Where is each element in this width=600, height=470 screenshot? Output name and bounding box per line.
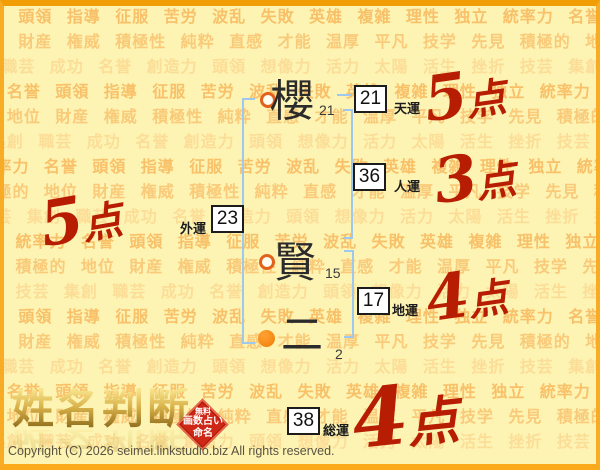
chiun-bracket-top-tick xyxy=(344,250,354,252)
name-char-2: 賢 xyxy=(274,242,316,284)
tenun-value: 21 xyxy=(360,88,381,110)
badge-line-2: 画数占い xyxy=(174,416,232,428)
jinun-bracket-top-tick xyxy=(343,109,353,111)
soun-score: 4点 xyxy=(348,371,460,462)
seimei-handan-result-page: 独立 統率力 名誉 頭領 指導 征服 苦労 波乱 失敗 英雄 複雑 理性 独立 … xyxy=(0,0,600,470)
stroke-count-3: 2 xyxy=(335,346,343,362)
free-service-badge-text[interactable]: 無料 画数占い 命名 xyxy=(174,407,232,439)
copyright-text: Copyright (C) 2026 seimei.linkstudio.biz… xyxy=(8,444,335,458)
name-char-1: 櫻 xyxy=(270,80,314,124)
watermark-row: 先見 積極的 地位 財産 権威 積極性 純粋 直感 才能 温厚 平凡 技学 先見… xyxy=(4,33,596,53)
stroke-count-1: 21 xyxy=(319,102,335,118)
tenun-score: 5点 xyxy=(420,59,507,131)
name-char-3: 二 xyxy=(281,314,323,356)
badge-line-1: 無料 xyxy=(174,407,232,416)
jinun-score: 3点 xyxy=(430,141,517,213)
tenun-connector-line xyxy=(337,94,352,96)
chiun-label: 地運 xyxy=(392,300,418,319)
chiun-value: 17 xyxy=(363,290,384,312)
soun-label: 総運 xyxy=(323,420,349,439)
badge-line-3: 命名 xyxy=(174,428,232,440)
chiun-score: 4点 xyxy=(422,259,509,331)
soun-value: 38 xyxy=(293,410,314,432)
gaiun-bracket-top-tick xyxy=(242,98,255,100)
jinun-value-box: 36 xyxy=(353,163,386,191)
stroke-count-2: 15 xyxy=(325,265,341,281)
watermark-row: 挫折 技芸 集創 職芸 成功 名誉 創造力 頭領 想像力 活力 太陽 活生 挫折… xyxy=(4,58,596,78)
gaiun-label: 外運 xyxy=(180,218,206,237)
given-char-marker xyxy=(259,254,275,270)
watermark-row: 挫折 技芸 集創 職芸 成功 名誉 創造力 頭領 想像力 活力 太陽 活生 挫折… xyxy=(4,358,596,378)
jinun-bracket-bottom-tick xyxy=(343,237,353,239)
tenun-value-box: 21 xyxy=(354,85,387,113)
given-char2-marker xyxy=(258,330,275,347)
chiun-value-box: 17 xyxy=(357,287,390,315)
site-logo[interactable]: 姓名判断 xyxy=(12,388,192,430)
gaiun-bracket-bottom-tick xyxy=(242,342,255,344)
watermark-row: 独立 統率力 名誉 頭領 指導 征服 苦労 波乱 失敗 英雄 複雑 理性 独立 … xyxy=(4,8,596,28)
gaiun-value: 23 xyxy=(217,208,238,230)
soun-value-box: 38 xyxy=(287,407,320,435)
jinun-label: 人運 xyxy=(394,176,420,195)
gaiun-value-box: 23 xyxy=(211,205,244,233)
tenun-label: 天運 xyxy=(394,98,420,117)
chiun-bracket xyxy=(352,250,354,338)
chiun-bracket-bottom-tick xyxy=(344,336,354,338)
jinun-value: 36 xyxy=(359,166,380,188)
